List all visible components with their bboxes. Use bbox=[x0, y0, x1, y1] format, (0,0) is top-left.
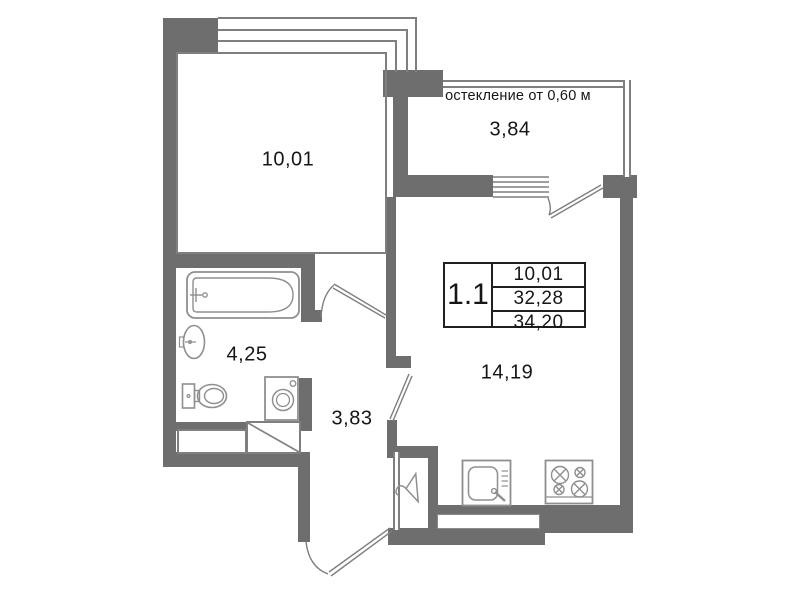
stove-icon bbox=[546, 461, 593, 504]
hallway-area-label: 3,83 bbox=[332, 408, 373, 431]
toilet-icon bbox=[183, 384, 227, 408]
unit-info-table: 1.1 10,01 32,28 34,20 bbox=[443, 262, 586, 328]
balcony-door-icon bbox=[548, 185, 603, 218]
bathroom-area-label: 4,25 bbox=[227, 344, 268, 367]
balcony-area-label: 3,84 bbox=[490, 119, 531, 142]
kitchen-sink-icon bbox=[463, 461, 511, 506]
unit-total-area: 34,20 bbox=[493, 312, 584, 334]
unit-number: 1.1 bbox=[445, 264, 493, 326]
bathroom-door-icon bbox=[321, 284, 386, 318]
kitchen-living-area-label: 14,19 bbox=[481, 362, 534, 385]
washing-machine-icon bbox=[265, 377, 298, 420]
room-door-icon bbox=[390, 374, 412, 421]
unit-area: 32,28 bbox=[493, 286, 584, 312]
unit-living-area: 10,01 bbox=[493, 264, 584, 286]
bathtub-icon bbox=[187, 272, 299, 318]
compartment-diagonal-line bbox=[248, 423, 299, 452]
plan-graphics bbox=[0, 0, 799, 600]
bath-sink-icon bbox=[180, 326, 205, 359]
balcony-window-hatch bbox=[493, 177, 549, 197]
living-room-area-label: 10,01 bbox=[262, 149, 315, 172]
coat-hanger-icon bbox=[395, 474, 419, 504]
floor-plan: 10,01 остекление от 0,60 м 3,84 4,25 3,8… bbox=[0, 0, 799, 600]
entrance-door-icon bbox=[306, 528, 392, 576]
balcony-glazing-note: остекление от 0,60 м bbox=[445, 88, 591, 104]
